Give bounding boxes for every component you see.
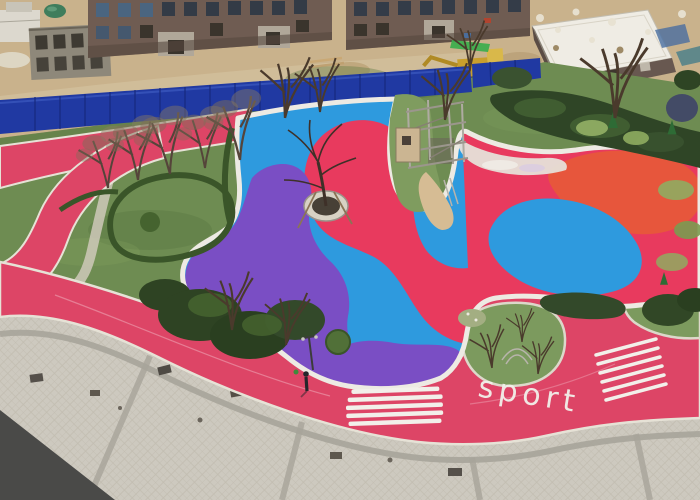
scene-canvas: sport: [0, 0, 700, 500]
aerial-playground-photo: sport: [0, 0, 700, 500]
purple-foliage: [666, 94, 698, 122]
